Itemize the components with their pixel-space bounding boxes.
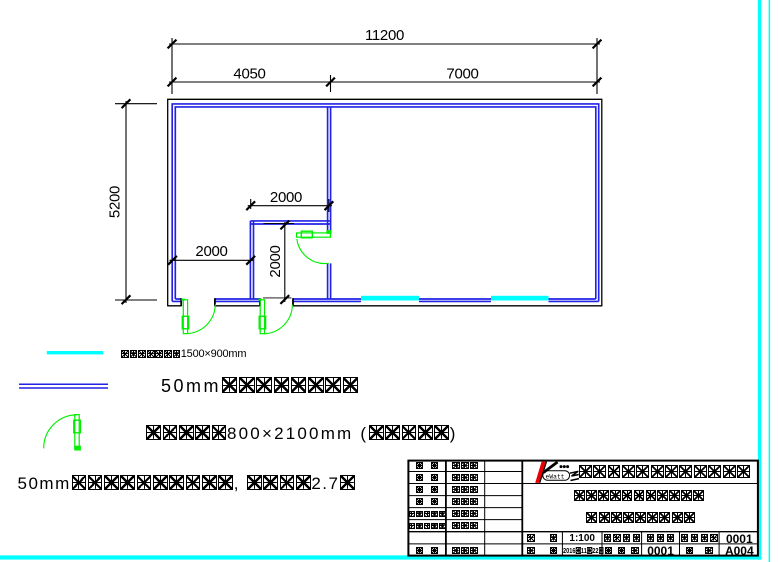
svg-text:eWatt: eWatt xyxy=(546,473,565,480)
svg-text:5200: 5200 xyxy=(107,186,124,218)
svg-text:4050: 4050 xyxy=(233,66,265,83)
svg-text:7000: 7000 xyxy=(446,66,478,83)
svg-text:2000: 2000 xyxy=(267,245,284,277)
svg-text:2000: 2000 xyxy=(270,189,302,206)
svg-text:2000: 2000 xyxy=(195,243,227,260)
svg-text:11200: 11200 xyxy=(365,27,404,44)
